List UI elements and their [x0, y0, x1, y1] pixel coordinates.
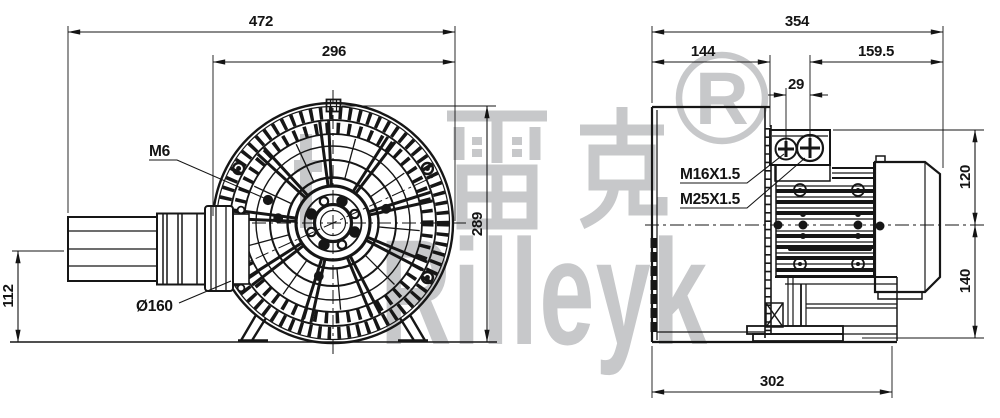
watermark-char-lei — [447, 112, 547, 224]
dim-text-guard-width: 296 — [322, 43, 346, 60]
dim-text-overall-length: 354 — [785, 13, 810, 30]
dim-text-motor-length: 159.5 — [858, 43, 894, 60]
dim-text-overall-width: 472 — [249, 13, 273, 30]
inlet-silencer — [68, 206, 249, 291]
dim-text-axis-to-bottom: 140 — [957, 269, 974, 293]
label-gland-m25-text: M25X1.5 — [680, 191, 741, 208]
registered-r-letter: R — [695, 57, 748, 140]
silencer-rings — [157, 214, 205, 285]
inlet-flange — [205, 206, 233, 291]
m6-bolt — [263, 195, 272, 204]
terminal-box — [770, 130, 830, 181]
watermark: R Rilleyk — [294, 55, 765, 376]
label-inlet-diameter-text: Ø160 — [136, 298, 173, 315]
cable-gland-m16-icon — [776, 139, 797, 160]
dim-text-axis-to-top: 120 — [957, 165, 974, 189]
dim-text-height: 289 — [469, 212, 486, 236]
dim-text-base-length: 302 — [760, 373, 784, 390]
dim-text-inlet-axis-height: 112 — [0, 284, 17, 307]
registered-trademark-icon: R — [679, 55, 765, 141]
watermark-brand-text: Rilleyk — [380, 208, 708, 376]
technical-drawing-page: R Rilleyk — [0, 0, 1000, 418]
cross-brace — [766, 303, 783, 327]
blower-dimension-drawing: R Rilleyk — [0, 0, 1000, 418]
motor-fins — [776, 162, 874, 277]
label-m6-text: M6 — [149, 143, 171, 160]
base-plate-upper — [747, 326, 843, 334]
label-gland-m16-text: M16X1.5 — [680, 166, 741, 183]
dim-text-housing-length: 144 — [691, 43, 716, 60]
dim-text-gland-spacing: 29 — [788, 76, 804, 93]
base-plate-lower — [753, 334, 843, 341]
